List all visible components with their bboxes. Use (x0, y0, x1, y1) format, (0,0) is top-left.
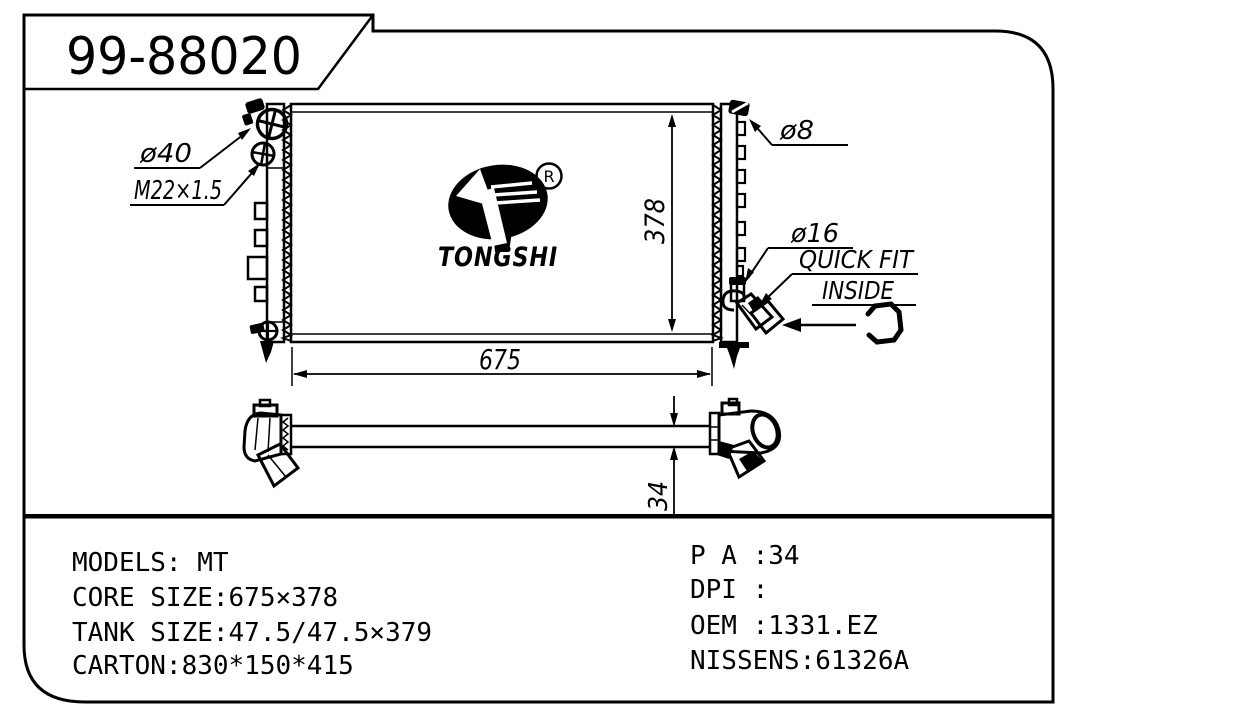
dim-core-width: 675 (292, 343, 712, 386)
registered-mark: R (543, 167, 554, 186)
spec-pa: P A :34 (690, 541, 800, 571)
filler-clip (242, 113, 254, 126)
profile-right-connector (710, 399, 782, 477)
callout-quick-fit: QUICK FIT INSIDE (759, 245, 918, 342)
callout-drain-thread: M22×1.5 (130, 163, 260, 206)
brand-logo: R TONGSHI (438, 158, 562, 273)
spec-tank-size: TANK SIZE:47.5/47.5×379 (72, 618, 432, 648)
drain-thread-label: M22×1.5 (134, 176, 222, 206)
part-number: 99-88020 (66, 27, 302, 87)
spec-block: MODELS: MT CORE SIZE:675×378 TANK SIZE:4… (72, 541, 909, 681)
clip-icon (868, 304, 901, 342)
quick-fit-connector (737, 294, 783, 333)
drain-valve (249, 322, 277, 363)
quick-fit-label: QUICK FIT (799, 245, 915, 274)
thickness-value: 34 (644, 481, 674, 511)
callout-bleed-diameter: ø8 (749, 116, 848, 146)
direction-arrowhead (782, 318, 801, 332)
dim-thickness: 34 (644, 396, 678, 514)
spec-core-size: CORE SIZE:675×378 (72, 583, 338, 613)
inside-label: INSIDE (822, 276, 894, 305)
spec-oem: OEM :1331.EZ (690, 611, 878, 641)
profile-left-flange-serration (283, 418, 288, 450)
brand-name: TONGSHI (438, 242, 558, 273)
callout-filler-diameter: ø40 (134, 128, 251, 169)
left-tank-bracket (248, 257, 267, 279)
profile-left-connector (244, 400, 298, 486)
right-tank-rib (737, 266, 743, 276)
left-tank-tab (255, 203, 267, 219)
core-height-value: 378 (640, 198, 671, 244)
divider-line (24, 514, 1053, 519)
mount-pin (719, 342, 749, 369)
right-tank (713, 99, 783, 369)
spec-nissens: NISSENS:61326A (690, 646, 909, 676)
spec-carton: CARTON:830*150*415 (72, 651, 354, 681)
spec-dpi: DPI : (690, 575, 768, 605)
drawing-sheet: 99-88020 (0, 0, 1240, 718)
bleed-screw-fitting (728, 99, 750, 116)
drain-plug-port (250, 141, 275, 166)
drain-pin (260, 341, 274, 363)
radiator-profile-view (244, 399, 782, 486)
left-tank-tab (255, 230, 267, 246)
radiator-technical-drawing: 99-88020 (0, 0, 1240, 718)
left-tank (242, 98, 291, 363)
filler-diameter-label: ø40 (139, 139, 192, 169)
spec-models: MODELS: MT (72, 548, 229, 578)
dim-core-height: 378 (640, 114, 676, 332)
bleed-diameter-label: ø8 (779, 116, 814, 146)
core-width-value: 675 (479, 343, 521, 376)
left-tank-tab (255, 287, 267, 301)
